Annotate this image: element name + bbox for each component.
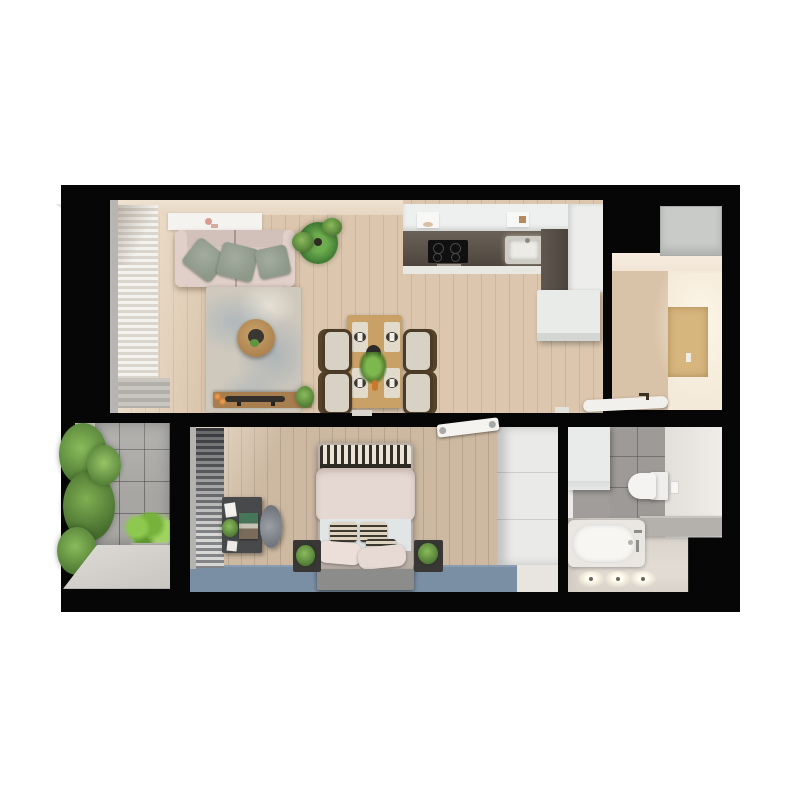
hedge-plants <box>87 445 121 485</box>
tray-foot <box>237 402 241 406</box>
tray-foot <box>271 402 275 406</box>
plant-foliage <box>292 232 314 252</box>
door-threshold <box>352 410 372 416</box>
desk <box>222 497 262 553</box>
plant-pot <box>314 238 322 246</box>
window-blinds <box>196 428 224 568</box>
kitchen-sink <box>505 236 543 264</box>
duvet <box>316 468 415 521</box>
napkin <box>358 333 363 341</box>
sofa <box>175 230 295 287</box>
bed-pillow-long <box>317 540 363 566</box>
tub-faucet <box>636 540 639 552</box>
desk-paper <box>224 502 237 517</box>
candle <box>219 398 226 405</box>
bath-storage-cabinet <box>568 427 610 490</box>
round-coffee-table <box>237 319 275 357</box>
potted-plant <box>296 220 340 268</box>
table-plant <box>250 339 259 347</box>
tub-drain <box>628 540 633 545</box>
floor-plan <box>61 185 740 612</box>
kitchen-cabinets-right <box>568 204 603 292</box>
door-threshold <box>555 407 569 413</box>
burner <box>451 253 460 262</box>
wardrobe-seam <box>497 519 558 520</box>
spotlight-dot <box>641 577 645 581</box>
peninsula-shadow-face <box>537 333 600 341</box>
toilet-bowl <box>628 473 656 499</box>
sink-basin <box>509 240 539 260</box>
dining-chair <box>403 329 433 373</box>
window-bench <box>118 378 170 408</box>
desk-plant <box>222 519 238 537</box>
door-handle-stem <box>646 393 649 400</box>
floor-spotlight <box>605 571 631 587</box>
light-mark <box>519 216 526 223</box>
kitchen-counter-dark-vertical <box>541 229 568 290</box>
desk-chair <box>260 505 282 548</box>
spotlight-dot <box>589 577 593 581</box>
console-plant <box>296 386 314 408</box>
dining-chair <box>403 371 433 413</box>
wardrobe-floor-strip <box>517 565 558 592</box>
bathtub <box>568 520 645 567</box>
bath-door-sliver <box>568 490 573 518</box>
media-console <box>213 392 312 408</box>
pendant-mark <box>211 224 218 228</box>
floor-spotlight <box>578 571 604 587</box>
wooden-wall-panel <box>668 307 708 377</box>
dining-chair <box>322 371 352 413</box>
wall-outlet <box>670 481 679 494</box>
hall-tall-cabinet <box>660 206 722 256</box>
wardrobe-seam <box>497 472 558 473</box>
burner <box>433 253 442 262</box>
bath-wall-tiles-lower <box>573 490 610 518</box>
planter-greens <box>123 512 169 543</box>
wardrobe <box>497 427 558 565</box>
spotlight-dot <box>616 577 620 581</box>
room-hallway <box>612 253 722 410</box>
room-bedroom <box>190 427 558 592</box>
light-bar-cap <box>439 427 447 435</box>
desk-paper <box>227 541 238 552</box>
faucet-dot <box>525 238 530 243</box>
window-wall-strip <box>110 200 118 413</box>
place-mat <box>352 322 368 352</box>
plant-foliage <box>322 218 342 236</box>
range-hood <box>417 212 439 228</box>
light-bar-cap <box>488 421 496 429</box>
decor-tray <box>225 396 285 402</box>
nightstand-plant <box>418 543 438 564</box>
nightstand-plant <box>296 545 315 566</box>
room-bathroom <box>568 427 722 592</box>
counter-front-edge <box>403 266 541 274</box>
panel-handle-mark <box>686 353 691 362</box>
cooktop <box>428 240 468 263</box>
nightstand <box>293 540 321 572</box>
nightstand <box>414 540 443 572</box>
dining-chair <box>322 329 352 373</box>
napkin <box>390 333 395 341</box>
double-bed <box>318 443 413 574</box>
room-living-kitchen <box>110 200 603 413</box>
kitchen-peninsula <box>537 290 600 341</box>
hood-mark <box>423 222 433 227</box>
napkin <box>390 379 395 387</box>
shelf-ledge <box>640 516 722 536</box>
place-mat <box>384 322 400 352</box>
curtain-corner-shade <box>118 205 158 265</box>
bed-pillow-long <box>357 544 407 571</box>
bed-bench <box>317 569 414 590</box>
tub-basin <box>572 524 636 563</box>
tub-faucet <box>634 530 642 533</box>
desk-magazine <box>239 513 258 539</box>
floor-spotlight <box>630 571 656 587</box>
bed-pillow-patterned <box>330 522 357 542</box>
decor-carrot <box>372 380 378 391</box>
sink-light <box>507 212 529 227</box>
